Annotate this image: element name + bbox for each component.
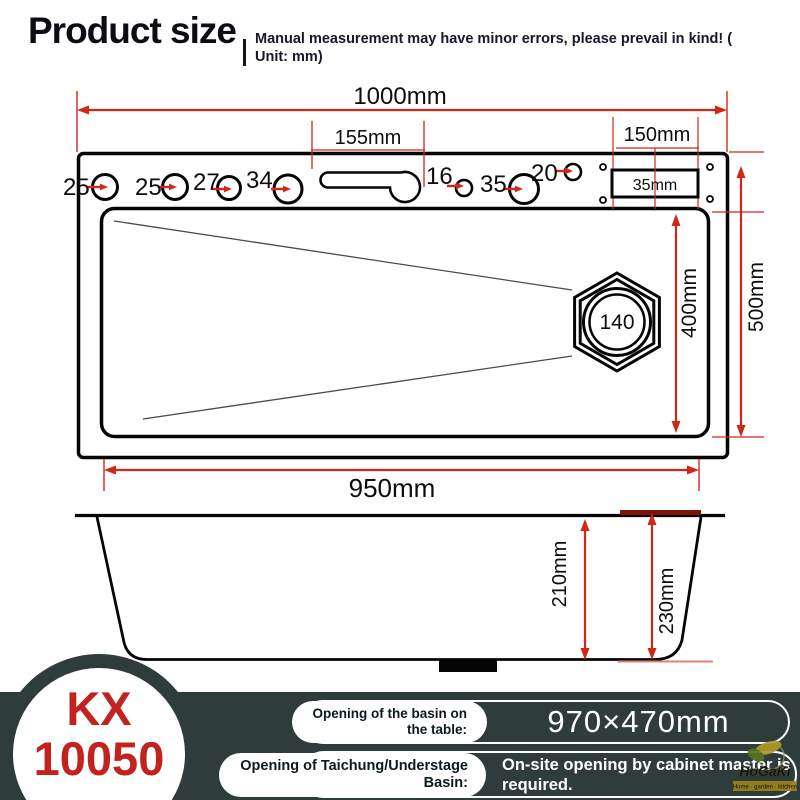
side-view-drain-stub — [439, 659, 497, 672]
spec-label-top-mount: Opening of the basin on the table: — [292, 701, 487, 743]
side-view-diagram: 210mm 230mm — [75, 513, 725, 673]
dim-overall-depth-label: 500mm — [745, 262, 768, 332]
spec-label-under-mount: Opening of Taichung/Understage Basin: — [219, 753, 486, 797]
model-number: KX 10050 — [13, 684, 185, 784]
hole-diameter-label: 25 — [63, 174, 90, 201]
dim-overall-height-label: 230mm — [656, 568, 678, 635]
spec-label-line: Basin: — [424, 775, 468, 792]
rear-rect-hole-label: 35mm — [633, 177, 677, 194]
mounting-hole — [600, 197, 606, 203]
hole-diameter-label: 27 — [193, 169, 220, 196]
top-view-diagram: 1000mm 155mm 150mm — [63, 83, 768, 503]
spec-label-line: the table: — [407, 722, 467, 738]
side-view-body — [97, 517, 701, 660]
dim-slot-width-label: 155mm — [335, 127, 402, 149]
model-number-line2: 10050 — [34, 732, 165, 785]
dim-corner-section-label: 150mm — [624, 124, 691, 146]
drain-size-label: 140 — [599, 311, 634, 334]
dim-inner-depth-label: 210mm — [549, 541, 571, 608]
hole-diameter-label: 34 — [246, 167, 273, 194]
hole-diameter-label: 25 — [135, 174, 162, 201]
brand-logo: HoGaKi Home · garden · kitchen — [730, 738, 800, 796]
dim-inner-width-label: 950mm — [349, 473, 436, 503]
mounting-hole — [707, 164, 713, 170]
spec-label-line: Opening of Taichung/Understage — [240, 758, 468, 775]
hole-diameter-label: 16 — [426, 163, 453, 190]
product-size-infographic: Product size Manual measurement may have… — [0, 0, 800, 800]
hole-diameter-label: 35 — [480, 171, 507, 198]
model-number-line1: KX — [66, 682, 131, 735]
dim-inner-depth — [581, 519, 590, 660]
hole-diameter-label: 20 — [531, 160, 558, 187]
sink-dimension-drawing: 1000mm 155mm 150mm — [0, 0, 800, 690]
brand-tagline: Home · garden · kitchen — [733, 785, 797, 791]
brand-name: HoGaKi — [739, 763, 791, 779]
mounting-hole — [600, 164, 606, 170]
dim-basin-length-label: 400mm — [678, 268, 701, 338]
dim-overall-width-label: 1000mm — [353, 83, 446, 110]
spec-label-line: Opening of the basin on — [313, 706, 468, 722]
mounting-hole — [707, 196, 713, 202]
